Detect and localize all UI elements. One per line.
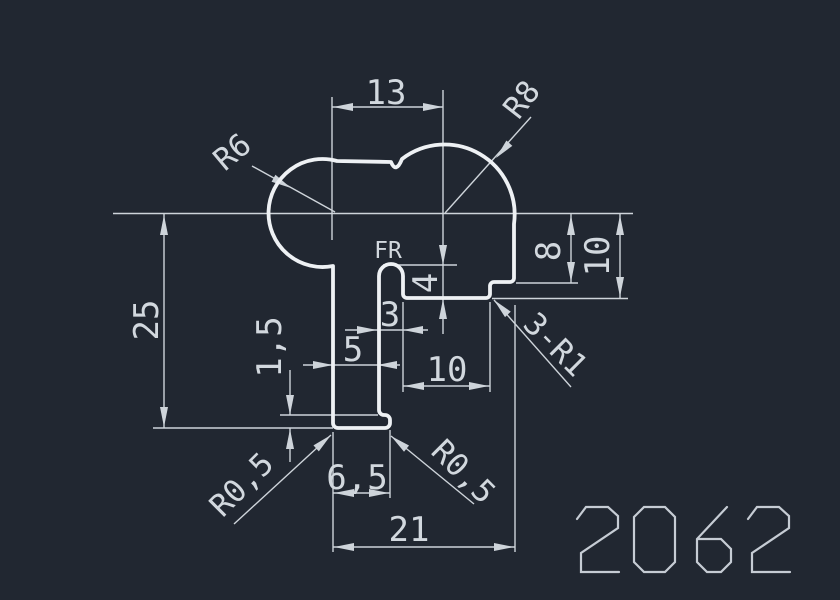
arrowhead <box>616 215 624 235</box>
fr-label: FR <box>374 238 402 264</box>
arrowhead <box>494 543 514 551</box>
dim-6p5-label: 6,5 <box>326 458 387 498</box>
dim-3-label: 3 <box>380 295 400 335</box>
arrowhead <box>160 215 168 235</box>
radius-r05-left-label: R0,5 <box>203 446 281 524</box>
arrowhead <box>439 299 447 319</box>
dim-10-right-label: 10 <box>578 236 618 277</box>
arrowhead <box>616 277 624 297</box>
dim-10-middle-label: 10 <box>427 350 468 390</box>
arrowhead <box>334 543 354 551</box>
dim-line <box>445 117 531 213</box>
dim-21-label: 21 <box>389 510 430 550</box>
cad-canvas: 13 25 1,5 R6 R8 FR 4 3 5 10 8 10 3-R1 R0… <box>0 0 840 600</box>
arrowhead <box>439 245 447 265</box>
dim-1p5-label: 1,5 <box>250 316 290 377</box>
arrowhead <box>567 262 575 282</box>
part-number-glyphs: 2062 <box>577 498 790 591</box>
arrowhead <box>403 326 423 334</box>
dim-line <box>252 166 335 212</box>
radius-r8-label: R8 <box>496 74 547 126</box>
radius-3r1-label: 3-R1 <box>516 306 594 384</box>
arrowhead <box>404 382 424 390</box>
dim-5-label: 5 <box>343 330 363 370</box>
arrowhead <box>567 215 575 235</box>
arrowhead <box>160 407 168 427</box>
arrowhead <box>333 103 353 111</box>
dim-8-label: 8 <box>529 241 569 261</box>
dim-4-label: 4 <box>406 273 446 293</box>
dim-25-label: 25 <box>127 300 167 341</box>
radius-r6-label: R6 <box>207 127 259 179</box>
dim-13-label: 13 <box>366 73 407 113</box>
arrowhead <box>286 395 294 415</box>
arrowhead <box>286 429 294 449</box>
arrowhead <box>469 382 489 390</box>
arrowhead <box>423 103 443 111</box>
arrowhead <box>493 140 512 160</box>
arrowhead <box>313 361 333 369</box>
